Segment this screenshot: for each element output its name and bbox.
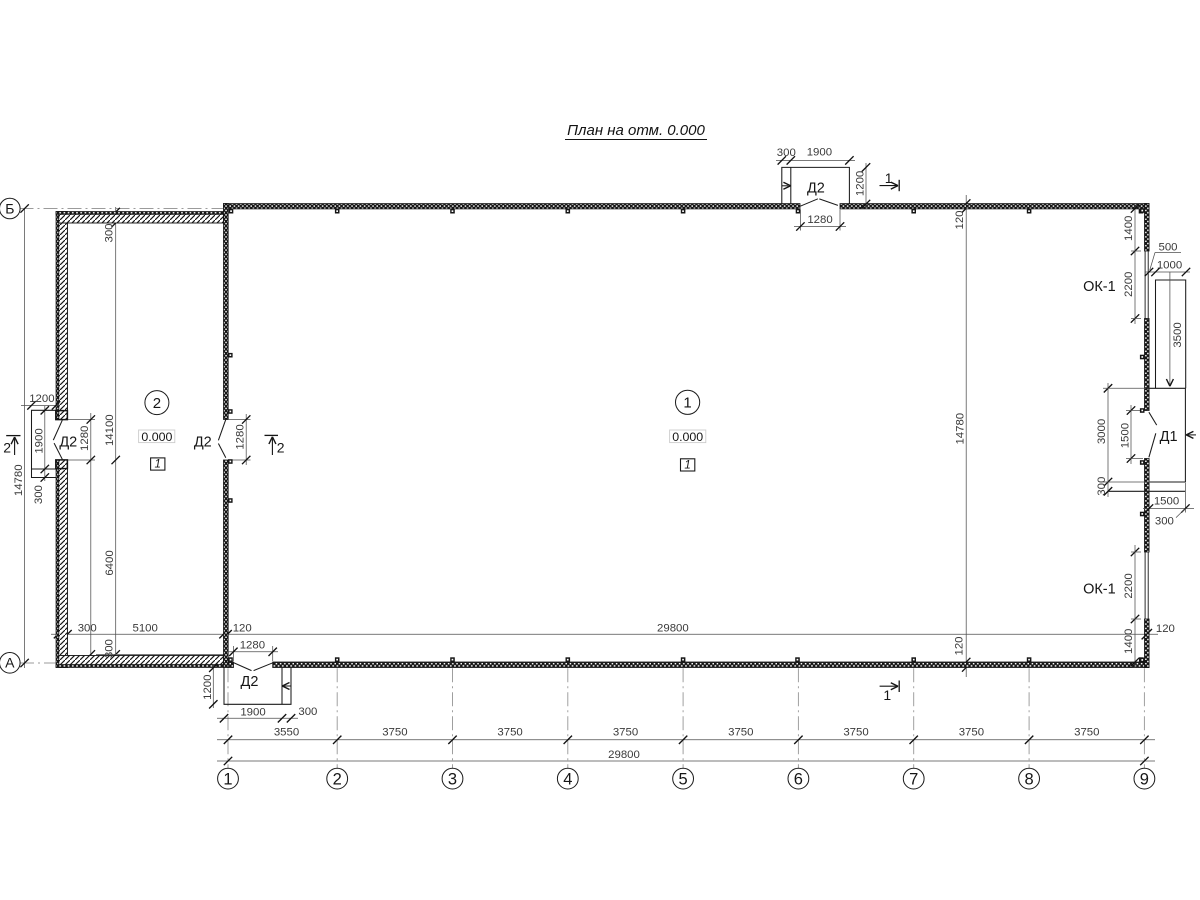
svg-text:3750: 3750 [1074, 726, 1099, 738]
svg-text:Б: Б [5, 200, 14, 216]
svg-text:0.000: 0.000 [141, 430, 172, 444]
svg-text:3550: 3550 [274, 726, 299, 738]
svg-text:29800: 29800 [657, 623, 689, 635]
svg-text:300: 300 [104, 639, 116, 658]
svg-text:300: 300 [78, 623, 97, 635]
svg-text:4: 4 [563, 770, 572, 788]
svg-text:1280: 1280 [79, 426, 91, 451]
svg-text:300: 300 [777, 147, 796, 159]
svg-text:3750: 3750 [497, 726, 522, 738]
svg-text:300: 300 [33, 485, 45, 504]
svg-text:3750: 3750 [613, 726, 638, 738]
svg-text:Д2: Д2 [241, 674, 259, 690]
svg-text:Д1: Д1 [1160, 429, 1178, 445]
svg-text:Д2: Д2 [194, 435, 212, 451]
svg-text:120: 120 [233, 623, 252, 635]
svg-text:1: 1 [684, 459, 690, 471]
svg-text:1200: 1200 [854, 171, 866, 196]
svg-text:1900: 1900 [33, 428, 45, 453]
svg-text:5100: 5100 [133, 623, 158, 635]
svg-text:1: 1 [883, 687, 891, 703]
svg-text:1: 1 [223, 770, 232, 788]
svg-text:300: 300 [1155, 516, 1174, 528]
svg-text:1900: 1900 [240, 707, 265, 719]
svg-text:1280: 1280 [807, 214, 832, 226]
svg-text:1400: 1400 [1123, 216, 1135, 241]
svg-text:2200: 2200 [1123, 573, 1135, 598]
svg-text:1280: 1280 [234, 424, 246, 449]
svg-text:6400: 6400 [104, 550, 116, 575]
svg-text:0.000: 0.000 [672, 430, 703, 444]
svg-text:1000: 1000 [1157, 259, 1182, 271]
svg-text:300: 300 [1096, 477, 1108, 496]
svg-text:План на отм. 0.000: План на отм. 0.000 [567, 122, 705, 139]
svg-text:7: 7 [909, 770, 918, 788]
svg-text:120: 120 [1156, 623, 1175, 635]
svg-text:14100: 14100 [104, 414, 116, 446]
svg-text:2: 2 [3, 439, 11, 455]
svg-text:8: 8 [1025, 770, 1034, 788]
svg-text:3750: 3750 [843, 726, 868, 738]
svg-text:300: 300 [104, 223, 116, 242]
svg-text:3500: 3500 [1172, 322, 1184, 347]
svg-text:ОК-1: ОК-1 [1083, 279, 1116, 295]
svg-text:1: 1 [154, 459, 160, 471]
svg-text:3000: 3000 [1096, 419, 1108, 444]
svg-text:500: 500 [1158, 241, 1177, 253]
svg-text:А: А [5, 655, 15, 671]
svg-text:1200: 1200 [202, 675, 214, 700]
svg-text:14780: 14780 [954, 413, 966, 445]
svg-text:ОК-1: ОК-1 [1083, 581, 1116, 597]
svg-text:5: 5 [679, 770, 688, 788]
svg-text:3: 3 [448, 770, 457, 788]
svg-text:Д2: Д2 [807, 180, 825, 196]
svg-text:1: 1 [683, 395, 691, 412]
svg-text:1280: 1280 [240, 640, 265, 652]
svg-text:2: 2 [153, 395, 161, 412]
svg-text:1500: 1500 [1119, 423, 1131, 448]
svg-text:3750: 3750 [959, 726, 984, 738]
svg-text:9: 9 [1140, 770, 1149, 788]
svg-text:2200: 2200 [1123, 272, 1135, 297]
svg-text:300: 300 [298, 706, 317, 718]
svg-text:1900: 1900 [807, 147, 832, 159]
svg-text:1500: 1500 [1154, 496, 1179, 508]
svg-text:29800: 29800 [608, 749, 640, 761]
svg-text:1200: 1200 [29, 393, 54, 405]
svg-text:1400: 1400 [1123, 629, 1135, 654]
svg-text:3750: 3750 [728, 726, 753, 738]
svg-text:14780: 14780 [13, 464, 25, 496]
svg-text:2: 2 [333, 770, 342, 788]
svg-text:Д2: Д2 [59, 435, 77, 451]
svg-text:2: 2 [277, 440, 285, 456]
svg-text:120: 120 [954, 210, 966, 229]
svg-text:1: 1 [885, 170, 893, 186]
svg-text:3750: 3750 [382, 726, 407, 738]
svg-text:120: 120 [954, 636, 966, 655]
svg-text:6: 6 [794, 770, 803, 788]
